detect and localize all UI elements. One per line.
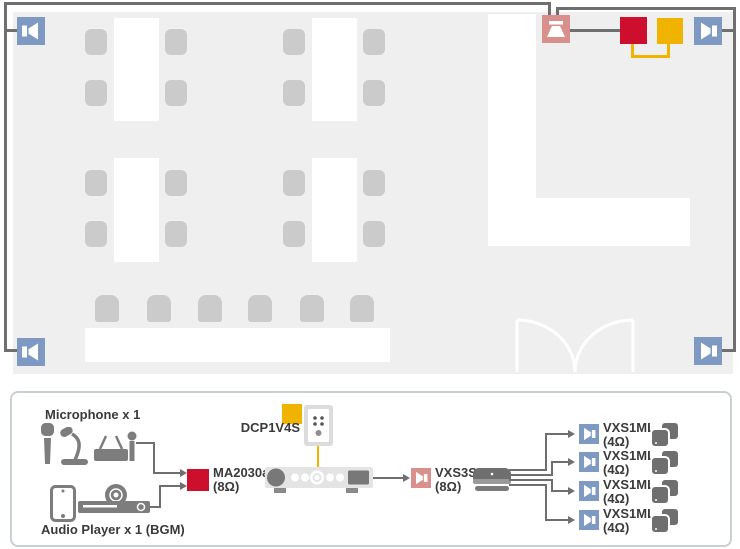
output-line-4 [545, 484, 547, 521]
speaker-pair-illustration [648, 420, 682, 450]
chair [283, 221, 305, 247]
speaker-pair-illustration [648, 477, 682, 507]
ma2030a-node [187, 469, 209, 491]
arrowhead [568, 430, 575, 438]
chair [165, 80, 187, 106]
output-line-1 [545, 433, 547, 471]
output-line-4 [509, 484, 547, 486]
chair [147, 295, 171, 322]
controller-line [317, 446, 319, 467]
audio-player-label: Audio Player x 1 (BGM) [41, 523, 185, 536]
arrowhead [568, 458, 575, 466]
room-floor-plan [0, 0, 740, 385]
output-line-2 [551, 461, 553, 476]
wire-amp-to-controller [631, 55, 670, 58]
arrowhead [568, 516, 575, 524]
vxs1ml-speaker-icon [579, 510, 599, 530]
chair [363, 221, 385, 247]
vxs1ml-speaker-icon [579, 452, 599, 472]
head-table [85, 328, 390, 362]
output-impedance-label: (4Ω) [603, 521, 629, 534]
arrowhead [180, 469, 187, 477]
vxs1ml-speaker-icon [579, 481, 599, 501]
wire-segment [722, 349, 736, 352]
sub-impedance-label: (8Ω) [435, 480, 461, 493]
amp-impedance-label: (8Ω) [213, 480, 239, 493]
meeting-table [312, 158, 357, 262]
ma2030a-amp-node [620, 17, 647, 44]
player-line [159, 485, 180, 487]
system-diagram-panel: Microphone x 1 Audio Player x 1 (BGM) [10, 391, 732, 547]
output-line-4 [545, 519, 568, 521]
sub-model-label: VXS3S [435, 466, 477, 479]
amp-model-label: MA2030a [213, 466, 269, 479]
mic-line [153, 472, 180, 474]
wire-segment [4, 29, 17, 32]
dcp1v4s-wall-panel-illustration [304, 405, 333, 446]
arrowhead [180, 482, 187, 490]
speaker-pair-illustration [648, 448, 682, 478]
ma2030a-amplifier-illustration [264, 466, 374, 495]
l-counter-horizontal [488, 198, 690, 246]
chair [363, 170, 385, 196]
chair [300, 295, 324, 322]
output-impedance-label: (4Ω) [603, 492, 629, 505]
smartphone-icon [50, 485, 76, 522]
chair [85, 170, 107, 196]
chair [95, 295, 119, 322]
vxs3s-subwoofer-illustration [473, 467, 513, 494]
vxs1ml-speaker-icon [17, 338, 45, 366]
vxs1ml-speaker-icon [17, 17, 45, 45]
output-line-3 [551, 490, 568, 492]
wire-segment [4, 2, 551, 5]
output-line-1 [509, 469, 547, 471]
chair [85, 221, 107, 247]
vxs1ml-speaker-icon [579, 424, 599, 444]
arrowhead [568, 487, 575, 495]
vxs3s-speaker-icon [411, 468, 431, 488]
amp-to-sub-line [373, 477, 403, 479]
chair [248, 295, 272, 322]
vxs3s-subwoofer-icon [542, 15, 570, 43]
output-impedance-label: (4Ω) [603, 463, 629, 476]
meeting-table [312, 18, 357, 121]
dcp1v4s-controller-node [657, 18, 683, 44]
handheld-microphone-icon [39, 423, 56, 465]
wire-segment [722, 29, 733, 32]
wire-segment [4, 2, 7, 352]
chair [165, 29, 187, 55]
chair [198, 295, 222, 322]
output-line-2 [551, 461, 568, 463]
wire-amp-to-controller [667, 44, 670, 58]
meeting-table [114, 18, 159, 121]
arrowhead [403, 474, 410, 482]
chair [283, 80, 305, 106]
player-line [159, 485, 161, 508]
chair [283, 29, 305, 55]
wire-segment [733, 7, 736, 352]
gooseneck-microphone-icon [58, 427, 90, 465]
chair [350, 295, 374, 322]
meeting-table [114, 158, 159, 262]
microphone-label: Microphone x 1 [45, 408, 140, 421]
output-impedance-label: (4Ω) [603, 435, 629, 448]
wire-segment [4, 349, 17, 352]
controller-label: DCP1V4S [212, 421, 300, 434]
chair [85, 80, 107, 106]
output-line-1 [545, 433, 568, 435]
wireless-microphone-icon [94, 431, 137, 465]
chair [165, 170, 187, 196]
wire-sub-to-amp [570, 29, 620, 32]
vxs1ml-speaker-icon [694, 337, 722, 365]
mic-line [153, 442, 155, 473]
double-door [512, 316, 638, 375]
chair [85, 29, 107, 55]
cd-player-icon [78, 484, 152, 513]
chair [165, 221, 187, 247]
speaker-pair-illustration [648, 506, 682, 536]
wire-segment [556, 7, 736, 10]
chair [363, 29, 385, 55]
vxs1ml-speaker-icon [694, 17, 722, 45]
chair [363, 80, 385, 106]
output-line-2 [509, 474, 553, 476]
output-line-3 [509, 479, 553, 481]
wire-segment [548, 2, 551, 15]
chair [283, 170, 305, 196]
